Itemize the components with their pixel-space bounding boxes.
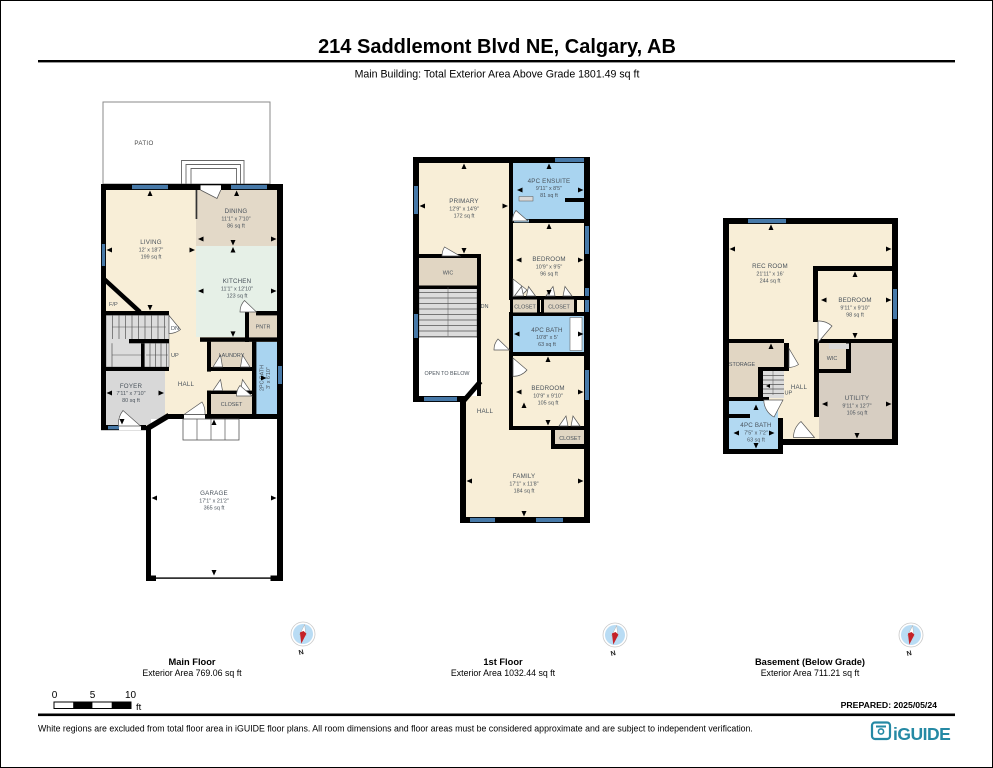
svg-text:86 sq ft: 86 sq ft bbox=[227, 224, 245, 230]
svg-text:iGUIDE: iGUIDE bbox=[893, 724, 950, 744]
svg-text:CLOSET: CLOSET bbox=[559, 436, 581, 442]
svg-text:105 sq ft: 105 sq ft bbox=[538, 401, 559, 407]
svg-text:GARAGE: GARAGE bbox=[200, 490, 228, 497]
svg-text:DN: DN bbox=[481, 304, 489, 310]
svg-text:7'5" x 7'2": 7'5" x 7'2" bbox=[744, 431, 768, 437]
svg-text:UP: UP bbox=[171, 353, 179, 359]
svg-text:1st Floor: 1st Floor bbox=[483, 657, 523, 667]
svg-text:244 sq ft: 244 sq ft bbox=[760, 279, 781, 285]
svg-text:BEDROOM: BEDROOM bbox=[532, 256, 565, 263]
svg-text:365 sq ft: 365 sq ft bbox=[204, 506, 225, 512]
svg-text:98 sq ft: 98 sq ft bbox=[846, 313, 864, 319]
svg-text:10'9" x 9'10": 10'9" x 9'10" bbox=[533, 394, 563, 400]
svg-text:HALL: HALL bbox=[791, 384, 808, 391]
svg-text:ft: ft bbox=[136, 702, 142, 713]
svg-text:LAUNDRY: LAUNDRY bbox=[219, 353, 245, 359]
svg-text:Exterior Area 1032.44 sq ft: Exterior Area 1032.44 sq ft bbox=[451, 668, 556, 678]
svg-text:BEDROOM: BEDROOM bbox=[531, 385, 564, 392]
svg-text:HALL: HALL bbox=[477, 408, 494, 415]
svg-text:17'1" x 21'2": 17'1" x 21'2" bbox=[199, 499, 229, 505]
svg-text:REC ROOM: REC ROOM bbox=[752, 263, 788, 270]
svg-text:81 sq ft: 81 sq ft bbox=[540, 193, 558, 199]
svg-text:WIC: WIC bbox=[827, 356, 838, 362]
svg-text:10: 10 bbox=[125, 690, 137, 701]
svg-text:PATIO: PATIO bbox=[134, 140, 153, 147]
svg-text:FOYER: FOYER bbox=[120, 383, 143, 390]
svg-text:11'1" x 7'10": 11'1" x 7'10" bbox=[221, 217, 250, 223]
svg-text:11'1" x 12'10": 11'1" x 12'10" bbox=[221, 287, 253, 293]
svg-text:184 sq ft: 184 sq ft bbox=[514, 489, 535, 495]
svg-text:DN: DN bbox=[171, 326, 179, 332]
svg-text:10'8" x 5': 10'8" x 5' bbox=[536, 335, 558, 341]
svg-text:BEDROOM: BEDROOM bbox=[838, 297, 871, 304]
svg-text:7'11" x 7'10": 7'11" x 7'10" bbox=[116, 391, 145, 397]
svg-text:9'11" x 12'7": 9'11" x 12'7" bbox=[842, 404, 871, 410]
svg-text:WIC: WIC bbox=[443, 271, 454, 277]
svg-text:0: 0 bbox=[52, 690, 58, 701]
svg-text:CLOSET: CLOSET bbox=[221, 402, 243, 408]
svg-text:Basement (Below Grade): Basement (Below Grade) bbox=[755, 657, 865, 667]
svg-text:5: 5 bbox=[90, 690, 96, 701]
svg-text:Main Building: Total Exterior: Main Building: Total Exterior Area Above… bbox=[355, 69, 640, 81]
svg-text:21'11" x 16': 21'11" x 16' bbox=[756, 272, 783, 278]
svg-text:UP: UP bbox=[785, 391, 793, 397]
svg-text:FAMILY: FAMILY bbox=[513, 473, 536, 480]
svg-text:Main Floor: Main Floor bbox=[169, 657, 216, 667]
svg-text:80 sq ft: 80 sq ft bbox=[122, 398, 140, 404]
svg-text:CLOSET: CLOSET bbox=[548, 305, 570, 311]
svg-text:172 sq ft: 172 sq ft bbox=[454, 214, 475, 220]
svg-text:STORAGE: STORAGE bbox=[729, 362, 756, 368]
svg-text:PRIMARY: PRIMARY bbox=[449, 198, 478, 205]
svg-text:10'9" x 9'5": 10'9" x 9'5" bbox=[536, 265, 563, 271]
svg-text:HALL: HALL bbox=[178, 381, 195, 388]
svg-text:PREPARED: 2025/05/24: PREPARED: 2025/05/24 bbox=[841, 700, 938, 710]
svg-text:Exterior Area 711.21 sq ft: Exterior Area 711.21 sq ft bbox=[761, 668, 860, 678]
svg-text:199 sq ft: 199 sq ft bbox=[141, 255, 162, 261]
svg-text:12'9" x 14'9": 12'9" x 14'9" bbox=[449, 207, 479, 213]
svg-text:63 sq ft: 63 sq ft bbox=[747, 438, 765, 444]
svg-text:OPEN TO BELOW: OPEN TO BELOW bbox=[424, 371, 470, 377]
svg-text:DINING: DINING bbox=[225, 208, 248, 215]
svg-text:4PC ENSUITE: 4PC ENSUITE bbox=[528, 178, 571, 185]
svg-text:9'11" x 8'5": 9'11" x 8'5" bbox=[536, 186, 562, 192]
svg-text:Exterior Area 769.06 sq ft: Exterior Area 769.06 sq ft bbox=[142, 668, 242, 678]
svg-text:96 sq ft: 96 sq ft bbox=[540, 272, 558, 278]
svg-text:CLOSET: CLOSET bbox=[514, 305, 536, 311]
svg-text:PNTR: PNTR bbox=[256, 325, 271, 331]
svg-text:12' x 18'7": 12' x 18'7" bbox=[139, 248, 164, 254]
svg-text:White regions are excluded fro: White regions are excluded from total fl… bbox=[38, 724, 753, 734]
svg-text:F/P: F/P bbox=[109, 302, 118, 308]
svg-text:105 sq ft: 105 sq ft bbox=[847, 411, 868, 417]
svg-text:9'11" x 9'10": 9'11" x 9'10" bbox=[840, 306, 869, 312]
svg-text:214 Saddlemont Blvd NE, Calgar: 214 Saddlemont Blvd NE, Calgary, AB bbox=[318, 36, 676, 58]
svg-text:4PC BATH: 4PC BATH bbox=[531, 327, 562, 334]
svg-text:63 sq ft: 63 sq ft bbox=[538, 342, 556, 348]
svg-text:17'1" x 11'8": 17'1" x 11'8" bbox=[509, 482, 538, 488]
svg-text:UTILITY: UTILITY bbox=[845, 395, 869, 402]
svg-text:LIVING: LIVING bbox=[140, 239, 162, 246]
svg-text:3' x 6'10": 3' x 6'10" bbox=[266, 367, 272, 389]
svg-text:4PC BATH: 4PC BATH bbox=[740, 422, 771, 429]
svg-text:KITCHEN: KITCHEN bbox=[223, 278, 252, 285]
svg-text:123 sq ft: 123 sq ft bbox=[227, 294, 248, 300]
